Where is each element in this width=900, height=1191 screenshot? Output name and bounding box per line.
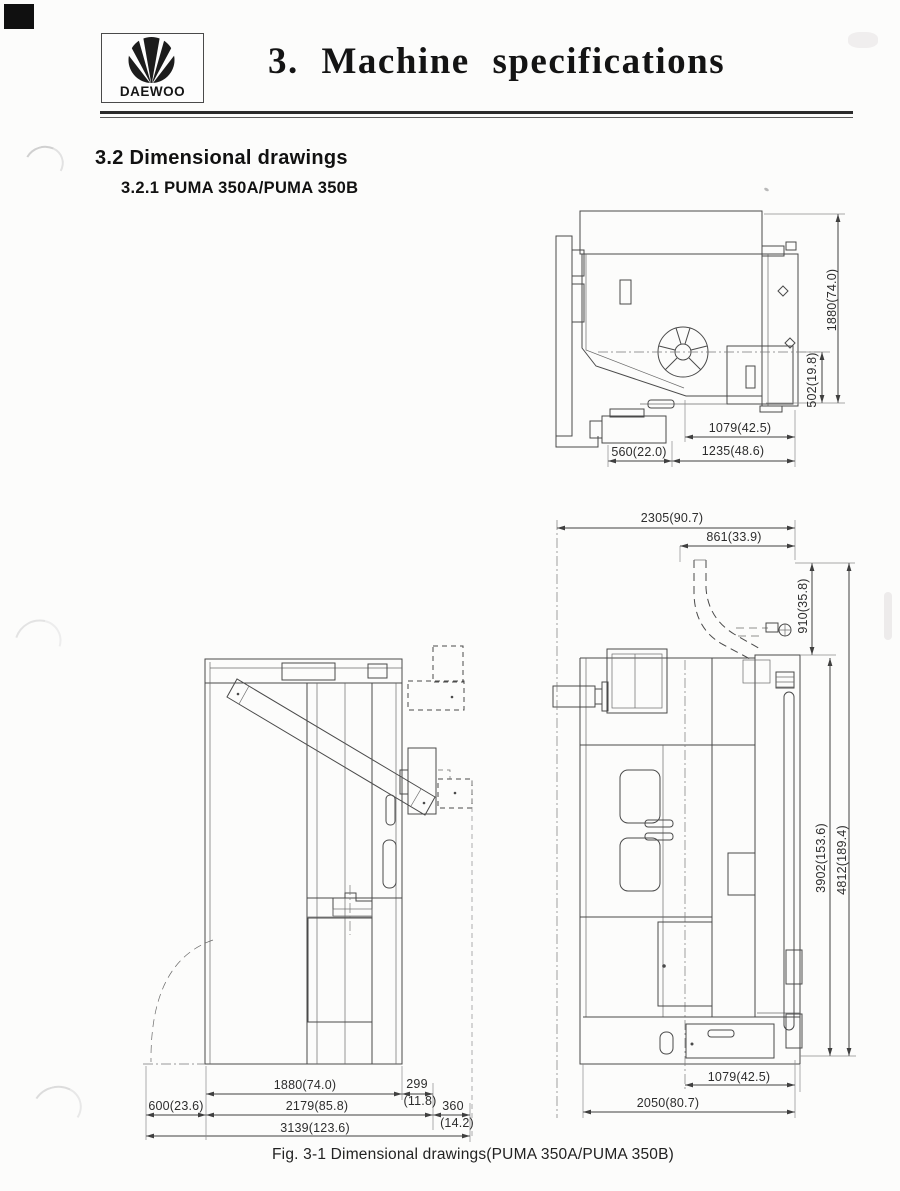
dim-label-front-861: 861(33.9) [706, 530, 761, 544]
dim-label-front-4812: 4812(189.4) [835, 825, 849, 895]
figure-caption: Fig. 3-1 Dimensional drawings(PUMA 350A/… [272, 1146, 674, 1164]
dim-label-top-502: 502(19.8) [805, 352, 819, 407]
side-view-drawing [143, 646, 472, 1142]
dim-label-side-360-inch: (14.2) [440, 1116, 474, 1130]
dim-label-top-1079: 1079(42.5) [709, 421, 771, 435]
dim-label-front-1079: 1079(42.5) [708, 1070, 770, 1084]
dim-label-top-560: 560(22.0) [611, 445, 666, 459]
dim-label-side-299: 299 [406, 1077, 427, 1091]
dim-label-side-2179: 2179(85.8) [286, 1099, 348, 1113]
dim-label-front-910: 910(35.8) [796, 578, 810, 633]
dimensional-drawings: .dim { marker-start:url(#as); marker-end… [0, 0, 900, 1191]
dim-label-side-3139: 3139(123.6) [280, 1121, 350, 1135]
front-view-drawing [553, 520, 856, 1118]
dim-label-side-360: 360 [442, 1099, 463, 1113]
dim-label-front-2305: 2305(90.7) [641, 511, 703, 525]
top-view-drawing [556, 211, 845, 467]
dim-label-front-3902: 3902(153.6) [814, 823, 828, 893]
dim-label-side-1880: 1880(74.0) [274, 1078, 336, 1092]
dim-label-side-600: 600(23.6) [148, 1099, 203, 1113]
dim-label-top-1235: 1235(48.6) [702, 444, 764, 458]
dim-label-top-1880: 1880(74.0) [825, 269, 839, 331]
manual-page: DAEWOO 3. Machine specifications 3.2 Dim… [0, 0, 900, 1191]
dim-label-front-2050: 2050(80.7) [637, 1096, 699, 1110]
dim-label-side-299-inch: (11.8) [404, 1094, 437, 1108]
